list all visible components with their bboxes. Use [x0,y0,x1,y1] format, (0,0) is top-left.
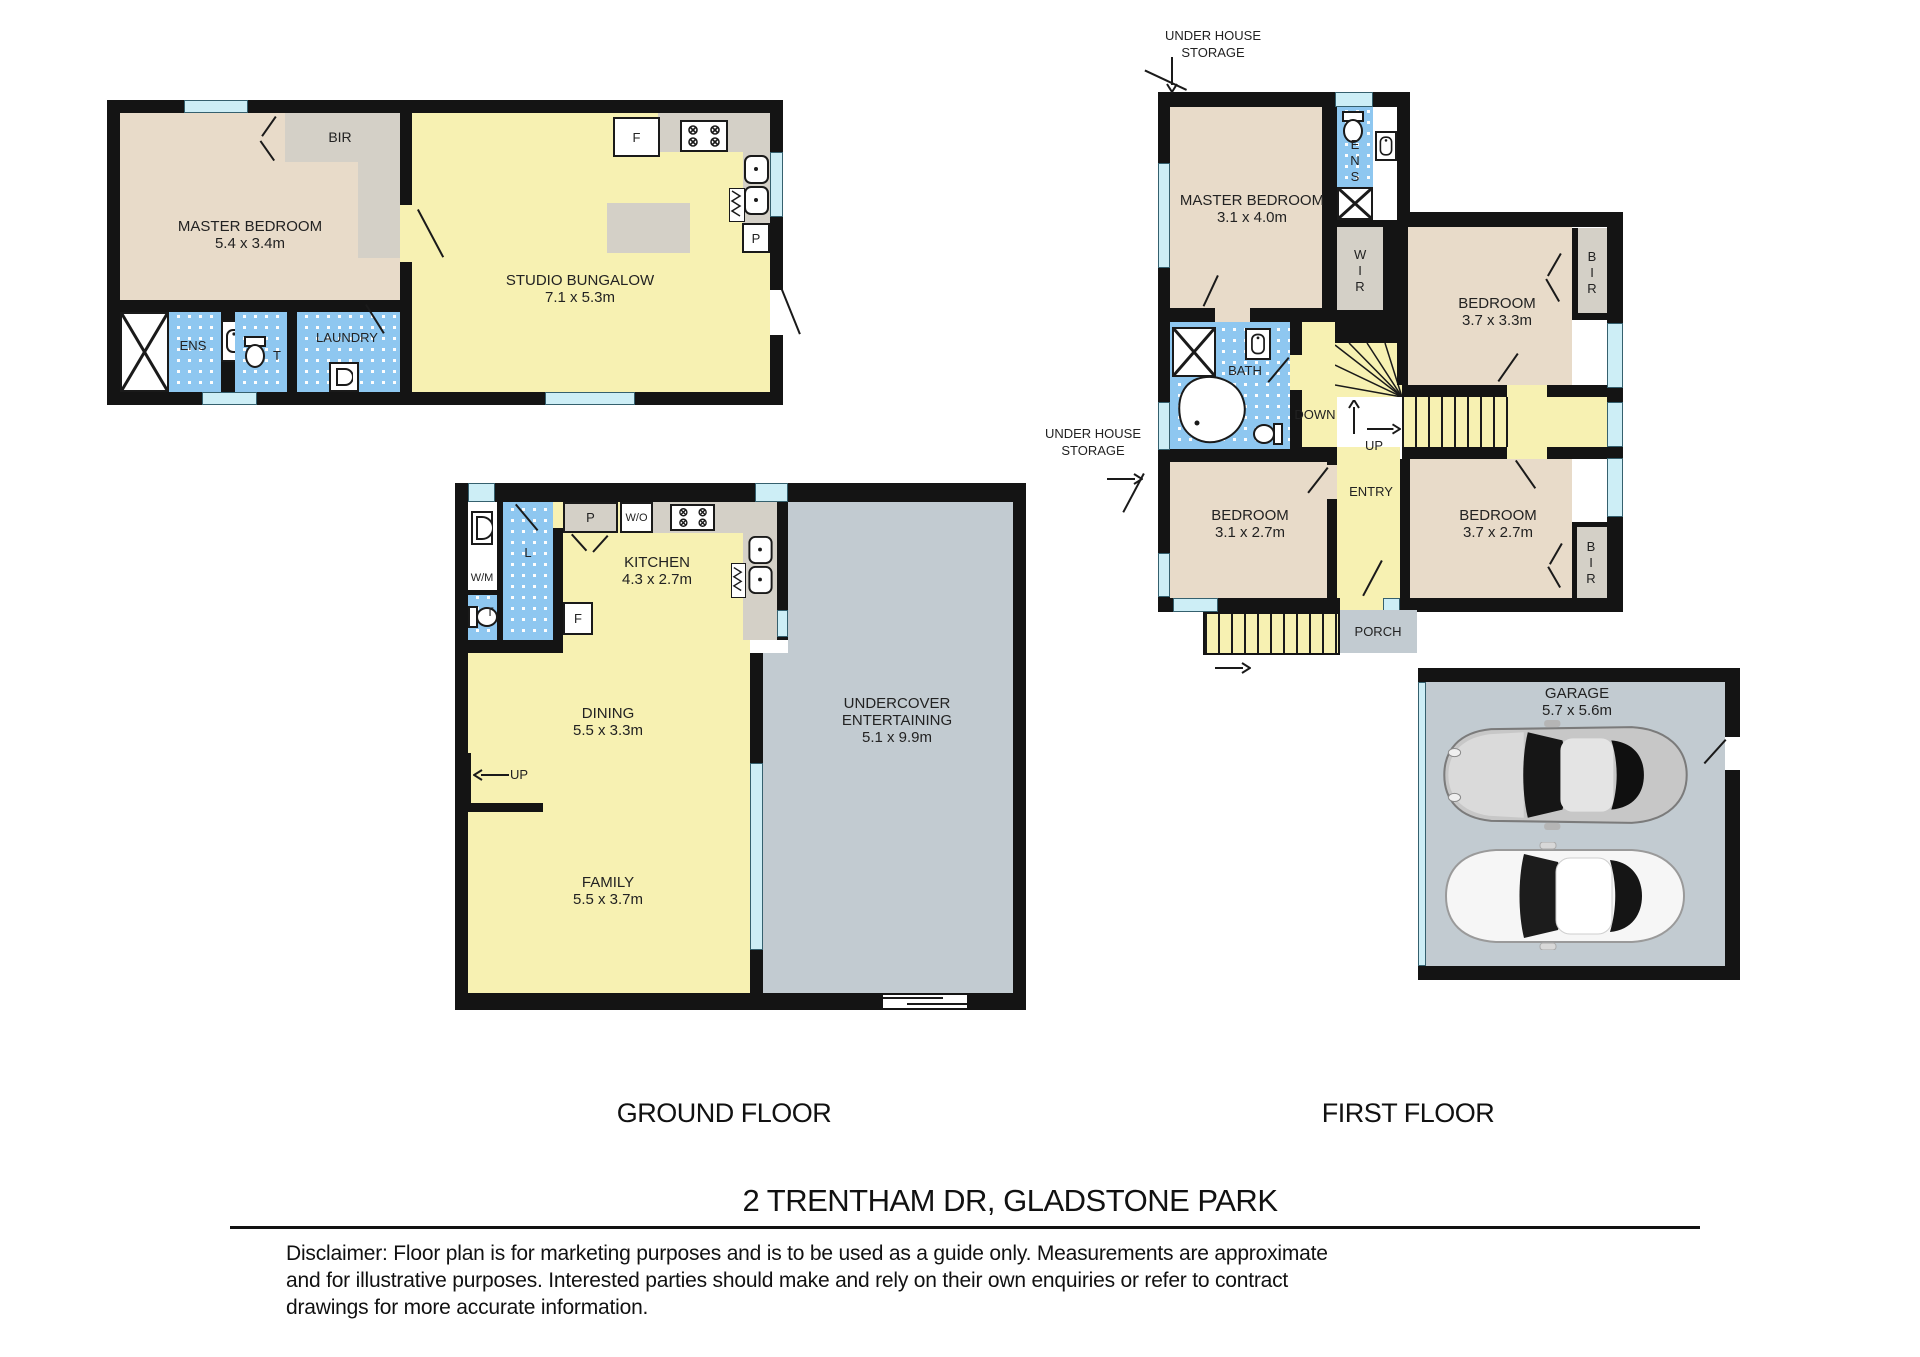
wall [1572,313,1607,320]
wall [1400,459,1410,598]
ff-bedroom3-nook [1572,462,1607,522]
linen-area [503,502,553,640]
laundry-trough [329,362,359,392]
ground-floor-plan: W/M L T P W/O F [455,483,1055,1010]
room-label-kitchen: KITCHEN 4.3 x 2.7m [622,554,692,588]
undercover-area [788,502,1013,993]
room-label-dining: DINING 5.5 x 3.3m [573,705,643,739]
cooktop-box [670,504,715,531]
page-title: 2 TRENTHAM DR, GLADSTONE PARK [310,1183,1710,1219]
disclaimer-line-2: and for illustrative purposes. Intereste… [286,1267,1466,1294]
window [1158,402,1170,450]
fridge-box: F [613,117,660,157]
wc-label: T [486,605,493,620]
wall [1397,227,1408,385]
shower-x-icon [1174,329,1214,375]
studio-side-door-leaf [781,289,801,334]
double-sink-icon [744,155,769,215]
window [545,392,635,405]
wall [1337,220,1397,227]
bir-label: BIR [328,130,351,145]
title-divider-line [230,1226,1700,1229]
ff-bedroom1-nook [1572,320,1607,385]
ff-stair-flight [1402,397,1510,447]
window [770,152,783,217]
wall [1402,385,1607,397]
cooktop-icon [674,507,712,528]
wall [1572,525,1577,598]
window [202,392,257,405]
room-label-master: MASTER BEDROOM 5.4 x 3.4m [178,218,322,252]
fridge-label: F [574,611,582,626]
wir-vertical-label: WIR [1354,247,1366,295]
bungalow-ens-label: ENS [180,338,207,353]
bedroom2-door-gap [1327,465,1337,499]
garage-side-door-gap [1725,737,1740,770]
entry-label: ENTRY [1349,484,1393,499]
car-sedan-icon [1440,842,1690,950]
wall [1418,966,1740,980]
pantry-cupboard: P [563,502,618,533]
dishwasher-icon [731,563,746,598]
wall [1335,310,1402,343]
left-arrow-icon [473,769,509,781]
stair-winder-icon [1335,343,1402,397]
window [1335,92,1373,107]
room-label-ff-bedroom3: BEDROOM 3.7 x 2.7m [1459,507,1537,541]
bath-door-gap [1290,355,1302,390]
master-door-gap [1215,308,1250,322]
wall [788,483,1026,502]
bungalow-bir-arm [358,162,400,258]
wall [750,653,763,763]
wall [1725,682,1740,966]
bir-vertical-label: BIR [1586,249,1598,297]
dishwasher-icon [729,188,745,222]
vanity-icon [1249,331,1267,357]
cooktop-box [680,120,728,152]
porch-label: PORCH [1355,624,1402,639]
porch-steps [1203,612,1340,655]
studio-island [607,203,690,253]
shower-x-icon [1339,189,1371,218]
ens-shower [1337,187,1373,220]
garage-door [1418,682,1426,966]
bungalow-plan: ENS T LAUNDRY F [107,100,783,405]
pantry-box: P [742,223,770,253]
room-label-undercover: UNDERCOVER ENTERTAINING 5.1 x 9.9m [842,695,952,746]
pantry-label: P [586,510,595,525]
disclaimer-line-3: drawings for more accurate information. [286,1294,1466,1321]
wall [1322,107,1337,308]
wall [1397,92,1410,227]
trough-icon [471,511,493,545]
down-label: DOWN [1294,407,1335,422]
ground-floor-label: GROUND FLOOR [617,1098,832,1129]
ff-entry [1337,462,1400,598]
under-house-storage-left-label: UNDER HOUSE STORAGE [1028,425,1158,459]
toilet-icon [1253,421,1283,447]
window [1158,553,1170,597]
sliding-door-line [883,997,943,999]
right-arrow-icon [1367,423,1401,435]
room-label-ff-master: MASTER BEDROOM 3.1 x 4.0m [1180,192,1324,226]
wall-oven-label: W/O [626,512,648,524]
room-label-studio: STUDIO BUNGALOW 7.1 x 5.3m [506,272,654,306]
wall [1572,228,1578,313]
disclaimer-text: Disclaimer: Floor plan is for marketing … [286,1240,1466,1321]
up-label: UP [1365,438,1383,453]
window [184,100,248,113]
fridge-label: F [633,130,641,145]
room-label-ff-bedroom1: BEDROOM 3.7 x 3.3m [1458,295,1536,329]
wall [1572,522,1607,527]
ens-vertical-label: ENS [1349,137,1361,185]
bir-vertical-label: BIR [1585,539,1597,587]
ff-landing [1302,322,1337,447]
cooktop-icon [684,124,724,148]
wall [1418,668,1740,682]
bungalow-studio-door-gap [400,205,412,262]
bungalow-laundry-label: LAUNDRY [316,330,378,345]
wall [1300,447,1337,462]
linen-label: L [524,545,531,560]
wall [455,640,563,653]
wall [455,483,468,1010]
wall [1397,212,1623,227]
wall [1383,227,1397,310]
window [777,610,788,637]
sliding-door-line [907,1003,967,1005]
right-arrow-icon [1215,662,1251,674]
car-sports-icon [1438,720,1693,830]
sliding-glass-door [750,763,763,950]
wall [553,528,563,640]
window [468,483,495,502]
bedroom1-door-gap [1507,385,1547,397]
fridge-box: F [563,602,593,635]
down-arrow-icon [1165,57,1179,93]
window [1173,598,1218,612]
studio-side-door-gap [770,290,783,335]
up-arrow-icon [1347,400,1361,434]
disclaimer-line-1: Disclaimer: Floor plan is for marketing … [286,1240,1466,1267]
room-label-ff-bedroom2: BEDROOM 3.1 x 2.7m [1211,507,1289,541]
wall [1402,447,1607,459]
wall [750,950,763,993]
floorplan-canvas: ENS T LAUNDRY F [0,0,1920,1357]
undercover-area-sliver [763,653,788,993]
bedroom3-door-gap [1507,447,1547,459]
window [755,483,788,502]
bungalow-studio [412,113,770,392]
up-label: UP [510,767,528,782]
window [1607,402,1623,447]
wall [468,803,543,812]
first-floor-label: FIRST FLOOR [1322,1098,1495,1129]
window [1158,163,1170,268]
room-label-family: FAMILY 5.5 x 3.7m [573,874,643,908]
bath-label: BATH [1228,363,1262,378]
window [1607,458,1623,517]
vanity-icon [1378,134,1394,158]
trough-icon [335,367,353,387]
first-floor-plan: UNDER HOUSE STORAGE UNDER HOUSE STORAGE … [1155,25,1775,980]
wall [1300,310,1335,322]
bungalow-wc-label: T [273,348,281,363]
wall [455,483,788,502]
wall-oven-box: W/O [620,502,653,533]
wm-label: W/M [471,571,494,586]
room-label-garage: GARAGE 5.7 x 5.6m [1542,685,1612,719]
bath-shower [1172,327,1216,377]
vanity-box [1375,131,1397,161]
shower-x-icon [122,314,167,390]
double-sink-icon [748,536,773,594]
stair-nook-line [468,753,471,803]
pantry-label: P [752,231,761,246]
bungalow-shower [120,312,169,392]
wall [1013,483,1026,993]
window [1607,323,1623,388]
toilet-icon [243,336,267,368]
ff-hall-end [1510,397,1607,447]
under-house-storage-top-label: UNDER HOUSE STORAGE [1157,27,1269,61]
spa-bath-icon [1175,373,1251,447]
bath-vanity [1245,328,1271,360]
